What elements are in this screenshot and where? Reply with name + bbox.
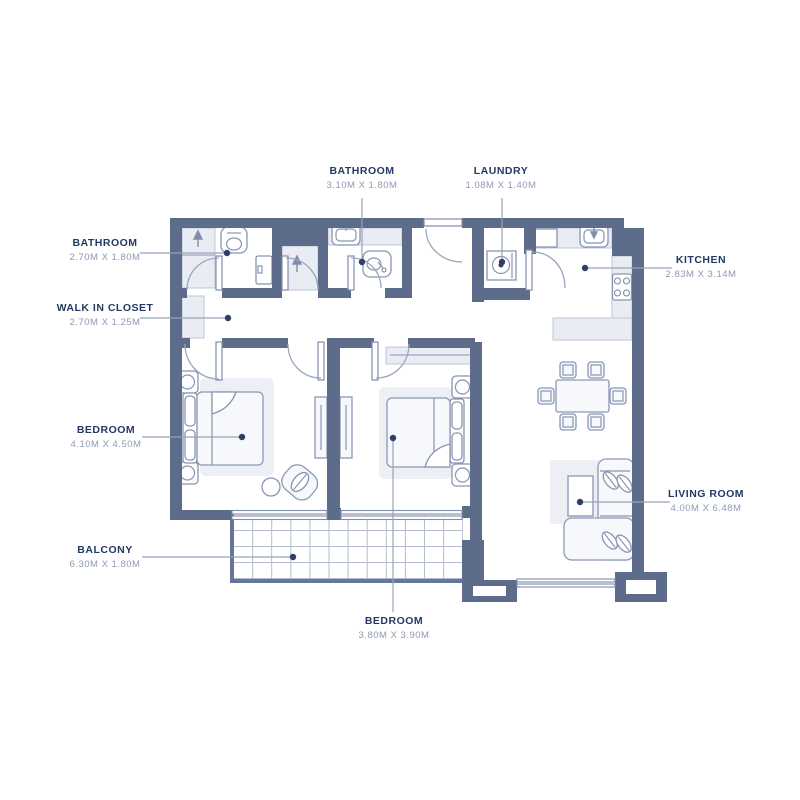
room-name: BATHROOM (327, 166, 398, 177)
cabinet-icon (256, 256, 272, 284)
room-name: KITCHEN (666, 255, 737, 266)
room-label-kitchen: KITCHEN 2.83M X 3.14M (666, 255, 737, 279)
door-bedroom-1 (288, 342, 324, 380)
bed-icon (183, 392, 263, 465)
walk-in-closet-fixtures (182, 296, 204, 338)
fridge-icon (534, 229, 557, 247)
room-dims: 2.70M X 1.80M (70, 253, 141, 263)
sink-icon (580, 225, 608, 247)
chair-icon (560, 414, 576, 430)
room-dims: 4.00M X 6.48M (668, 504, 744, 514)
balcony-area (230, 512, 463, 583)
room-dims: 3.80M X 3.90M (359, 631, 430, 641)
room-name: BALCONY (70, 545, 141, 556)
sofa-icon (550, 459, 635, 560)
door-entrance (424, 219, 462, 262)
chair-icon (610, 388, 626, 404)
chair-icon (560, 362, 576, 378)
stove-icon (613, 274, 632, 300)
dining-table-icon (538, 362, 626, 430)
room-dims: 2.83M X 3.14M (666, 270, 737, 280)
floor-plan-drawing (0, 0, 800, 800)
bed-icon (387, 398, 464, 467)
armchair-icon (277, 460, 322, 504)
door-kitchen (526, 250, 565, 290)
room-dims: 6.30M X 1.80M (70, 560, 141, 570)
bedroom-1-furniture (177, 371, 322, 504)
room-label-bathroom-1: BATHROOM 2.70M X 1.80M (70, 238, 141, 262)
coffee-table-icon (568, 476, 593, 516)
chair-icon (538, 388, 554, 404)
room-dims: 4.10M X 4.50M (71, 440, 142, 450)
bathroom-1-fixtures (182, 227, 272, 288)
chair-icon (588, 362, 604, 378)
room-name: LIVING ROOM (668, 489, 744, 500)
nightstand-icon (452, 376, 473, 398)
side-table-icon (262, 478, 280, 496)
room-label-laundry: LAUNDRY 1.08M X 1.40M (466, 166, 537, 190)
chair-icon (588, 414, 604, 430)
room-label-walk-in-closet: WALK IN CLOSET 2.70M X 1.25M (57, 303, 154, 327)
room-name: WALK IN CLOSET (57, 303, 154, 314)
room-name: BEDROOM (71, 425, 142, 436)
room-label-bedroom-1: BEDROOM 4.10M X 4.50M (71, 425, 142, 449)
floor-plan-page: BATHROOM 2.70M X 1.80M WALK IN CLOSET 2.… (0, 0, 800, 800)
room-label-bathroom-2: BATHROOM 3.10M X 1.80M (327, 166, 398, 190)
toilet-icon (221, 227, 247, 253)
room-label-balcony: BALCONY 6.30M X 1.80M (70, 545, 141, 569)
room-name: LAUNDRY (466, 166, 537, 177)
room-dims: 1.08M X 1.40M (466, 181, 537, 191)
bathroom-2-fixtures (328, 224, 402, 277)
nightstand-icon (452, 464, 473, 486)
room-name: BATHROOM (70, 238, 141, 249)
room-label-living-room: LIVING ROOM 4.00M X 6.48M (668, 489, 744, 513)
room-name: BEDROOM (359, 616, 430, 627)
room-dims: 2.70M X 1.25M (57, 318, 154, 328)
room-dims: 3.10M X 1.80M (327, 181, 398, 191)
room-label-bedroom-2: BEDROOM 3.80M X 3.90M (359, 616, 430, 640)
